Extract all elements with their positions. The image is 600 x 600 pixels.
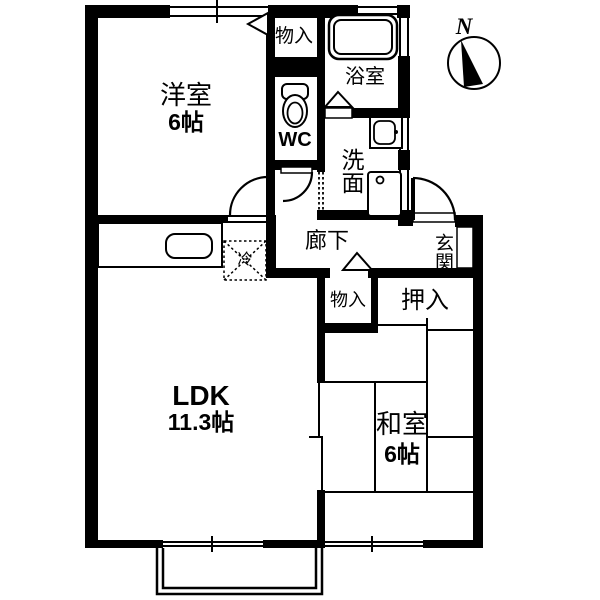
wc-door-arc <box>283 172 312 201</box>
storage-door-triangle <box>343 253 372 270</box>
balcony <box>157 548 322 594</box>
japanese-room-label: 和室 <box>372 411 432 440</box>
closet-label: 押入 <box>394 288 456 314</box>
storage-lower-label: 物入 <box>325 291 371 311</box>
compass <box>448 37 500 89</box>
shoe-cabinet <box>457 227 473 268</box>
western-room-size: 6帖 <box>146 110 226 135</box>
washroom-label: 洗面 <box>334 141 362 201</box>
washing-machine <box>368 172 401 216</box>
toilet-label: WC <box>275 129 315 151</box>
refrigerator-label: 冷 <box>236 252 254 269</box>
hallway-label: 廊下 <box>296 229 358 253</box>
western-room-label: 洋室 <box>146 82 226 111</box>
compass-n-label: N <box>452 14 476 39</box>
floorplan-drawing <box>0 0 600 600</box>
bathroom-label: 浴室 <box>339 66 391 88</box>
bath-door-triangle <box>325 92 352 107</box>
ldk-label: LDK <box>161 381 241 412</box>
ldk-size: 11.3帖 <box>151 410 251 435</box>
western-room-door-arc <box>230 177 268 215</box>
floorplan-canvas: 洋室 6帖 物入 浴室 WC 洗面 廊下 玄関 物入 押入 冷 LDK 11.3… <box>0 0 600 600</box>
japanese-room-size: 6帖 <box>372 442 432 467</box>
kitchen-sink <box>166 234 212 258</box>
storage-top-label: 物入 <box>268 27 320 48</box>
entrance-label: 玄関 <box>428 227 452 277</box>
